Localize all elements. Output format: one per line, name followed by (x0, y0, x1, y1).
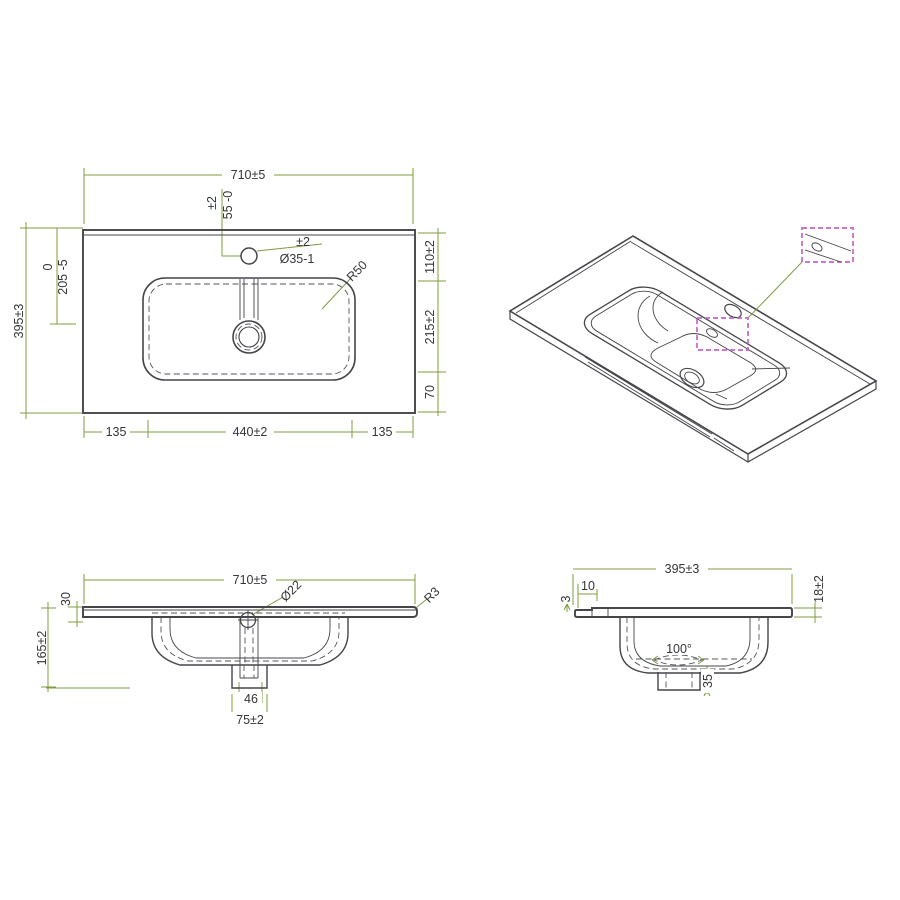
dim-side-edge-thickness: 18±2 (812, 575, 826, 603)
front-dimension-lines (41, 574, 427, 726)
dim-plan-bottom-left: 135 (106, 425, 127, 439)
dim-plan-right-bottom: 70 (423, 385, 437, 399)
plan-faucet-hole (241, 248, 257, 264)
dim-plan-width: 710±5 (231, 168, 266, 182)
iso-bowl-corner-curves (638, 292, 668, 343)
dim-plan-hole-offset-tol: ±2 (205, 196, 219, 210)
front-drain-hidden (244, 665, 254, 678)
front-drain-inner (240, 665, 258, 678)
dim-front-edge-radius: R3 (421, 584, 442, 605)
dim-plan-hole-dia: Ø35-1 (280, 252, 315, 266)
front-bowl-inner (170, 617, 330, 658)
dim-front-total-height: 165±2 (35, 631, 49, 666)
iso-basin-rim-outer (575, 282, 795, 415)
dim-front-drain-outer: 75±2 (236, 713, 264, 727)
callout-leader-line (748, 261, 803, 318)
front-section-view: 710±5 30 165±2 Ø22 R3 46 75±2 (35, 573, 443, 727)
overflow-detail-box (802, 228, 853, 262)
dim-side-front-strip: 10 (581, 579, 595, 593)
front-bowl-hidden (161, 617, 339, 661)
dim-side-cone-angle: 100° (666, 642, 692, 656)
detail-overflow-hole (810, 241, 823, 253)
dim-plan-hole-offset: 55 -0 (221, 191, 235, 220)
iso-countertop-top-face (510, 236, 876, 454)
dim-side-drain-height: 35 (701, 674, 715, 688)
dim-plan-right-mid: 215±2 (423, 310, 437, 345)
plan-view: 710±5 ±2 55 -0 ±2 Ø35-1 R50 395±3 0 205 … (12, 168, 446, 439)
plan-basin-rim (143, 278, 355, 380)
iso-apron-lines (585, 357, 734, 451)
plan-drain-mid (236, 324, 262, 350)
dim-plan-depth: 395±3 (12, 304, 26, 339)
plan-overflow-channel (240, 279, 258, 320)
dim-plan-center-offset-tol: 0 (41, 263, 55, 270)
plan-drain-outer (233, 321, 265, 353)
plan-drain-inner (239, 327, 259, 347)
side-countertop-seams (592, 608, 608, 617)
iso-basin-rim-inner (584, 287, 787, 410)
dim-front-overflow-dia: Ø22 (278, 578, 305, 605)
side-section-view: 395±3 10 3 18±2 100° 35 (559, 562, 826, 696)
side-drain-box (658, 672, 700, 690)
detail-edge-lines (805, 234, 851, 262)
plan-basin-rim-inner (149, 284, 349, 374)
front-overflow-channel-hidden (245, 628, 253, 665)
side-drain-hidden (666, 672, 692, 690)
dim-side-front-drop: 3 (559, 595, 573, 602)
dim-plan-bottom-mid: 440±2 (233, 425, 268, 439)
dim-side-depth: 395±3 (665, 562, 700, 576)
dim-front-edge-height: 30 (59, 592, 73, 606)
front-countertop-bar (83, 607, 417, 617)
side-dimension-lines (564, 569, 822, 696)
iso-basin-rim-group (575, 282, 795, 415)
isometric-view (510, 228, 876, 462)
dim-plan-bottom-right: 135 (372, 425, 393, 439)
dim-plan-corner-radius: R50 (344, 258, 370, 284)
dim-front-width: 710±5 (233, 573, 268, 587)
technical-drawing-canvas: 710±5 ±2 55 -0 ±2 Ø35-1 R50 395±3 0 205 … (0, 0, 900, 900)
dim-plan-hole-dia-tol: ±2 (296, 235, 310, 249)
side-cone-lens (654, 655, 702, 665)
dim-plan-center-offset: 205 -5 (56, 259, 70, 294)
dim-front-drain-inner: 46 (244, 692, 258, 706)
basin-drawing-svg: 710±5 ±2 55 -0 ±2 Ø35-1 R50 395±3 0 205 … (0, 0, 900, 900)
dim-plan-right-top: 110±2 (423, 240, 437, 274)
